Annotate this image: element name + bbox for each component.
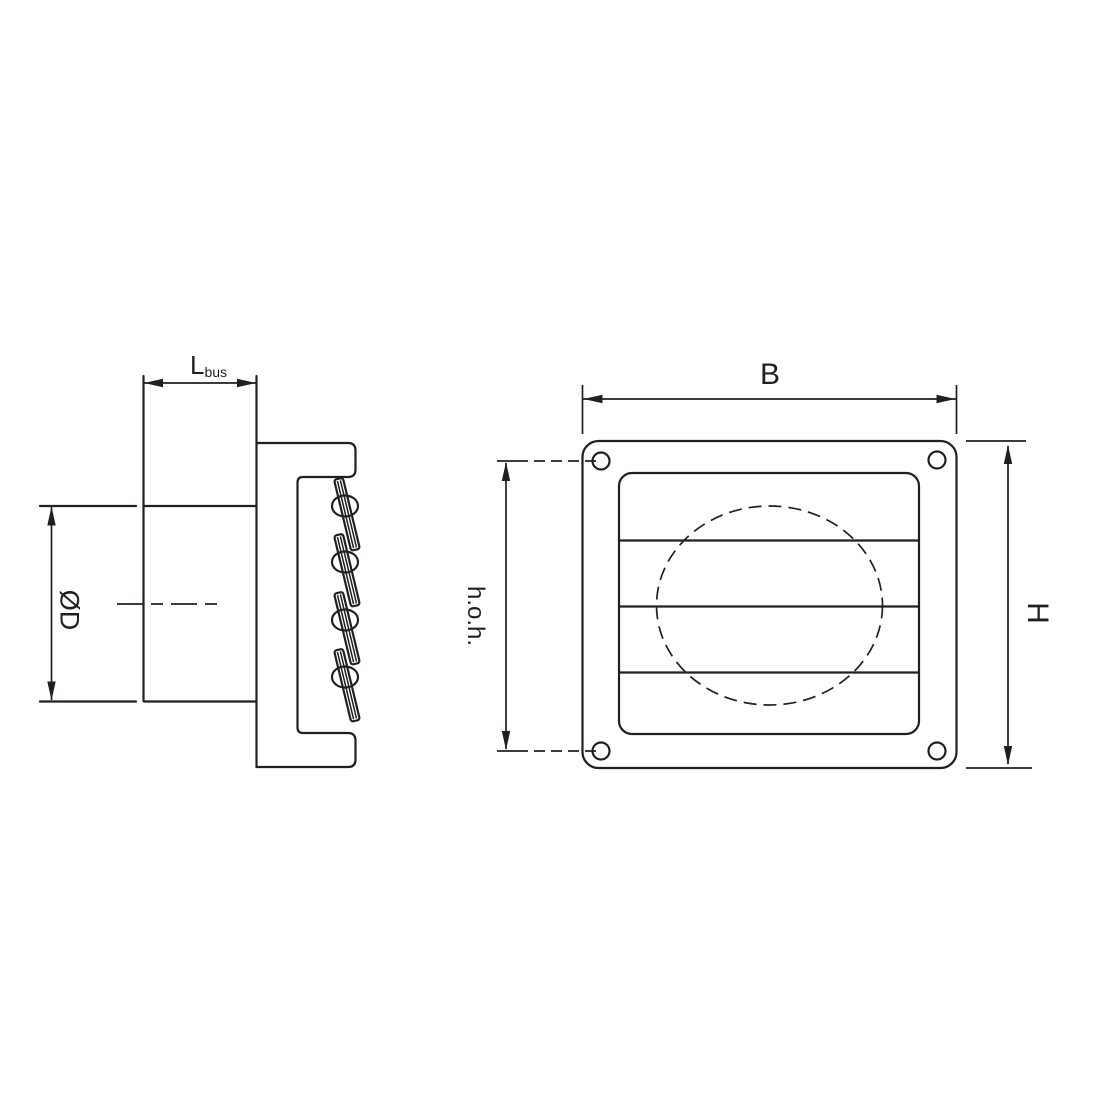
arrowhead-right bbox=[937, 395, 956, 403]
duct-outline bbox=[40, 376, 256, 702]
louver-slat-lines bbox=[619, 541, 919, 673]
arrowhead-down bbox=[47, 682, 55, 701]
side-view: Lbus ØD bbox=[40, 350, 360, 767]
front-view: B h.o.h. H bbox=[462, 358, 1054, 768]
duct-length-label: Lbus bbox=[190, 350, 227, 380]
dimension-grille-width: B bbox=[583, 358, 957, 434]
grille-width-label: B bbox=[760, 358, 780, 391]
arrowhead-up bbox=[47, 507, 55, 526]
duct-diameter-label: ØD bbox=[55, 590, 85, 631]
vent-grille-drawing: Lbus ØD bbox=[0, 0, 1100, 1100]
arrowhead-down bbox=[1004, 746, 1012, 765]
grille-height-label: H bbox=[1021, 602, 1054, 624]
arrowhead-left bbox=[144, 379, 163, 387]
arrowhead-up bbox=[1004, 445, 1012, 464]
grille-plate bbox=[583, 441, 957, 768]
arrowhead-down bbox=[502, 731, 510, 750]
screw-hole-bottom-right bbox=[929, 743, 946, 760]
arrowhead-right bbox=[237, 379, 256, 387]
louver-frame bbox=[619, 473, 919, 734]
dimension-duct-diameter: ØD bbox=[47, 507, 84, 701]
extension-lines bbox=[583, 385, 957, 434]
dimension-grille-height: H bbox=[966, 441, 1054, 768]
arrowhead-left bbox=[584, 395, 603, 403]
hole-spacing-label: h.o.h. bbox=[462, 586, 489, 646]
arrowhead-up bbox=[502, 462, 510, 481]
dimension-duct-length: Lbus bbox=[144, 350, 256, 387]
screw-hole-top-right bbox=[929, 452, 946, 469]
technical-drawing-page: Lbus ØD bbox=[0, 0, 1100, 1100]
dimension-hole-spacing: h.o.h. bbox=[462, 461, 601, 751]
